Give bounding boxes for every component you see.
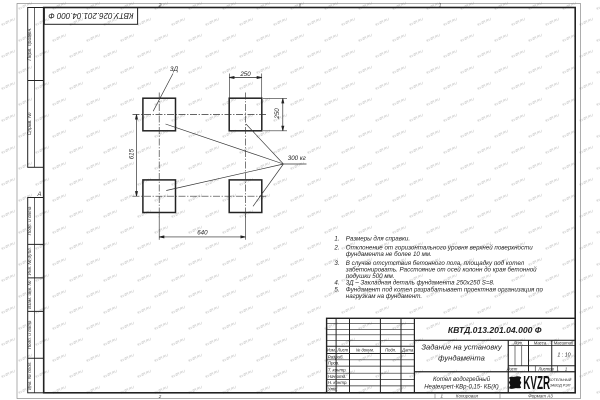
svg-text:640: 640 [197, 230, 208, 237]
svg-text:Взам. инв. №: Взам. инв. № [27, 280, 32, 308]
svg-text:КОТЕЛЬНЫЙ: КОТЕЛЬНЫЙ [549, 378, 572, 382]
svg-text:Котел водогрейный: Котел водогрейный [433, 376, 491, 383]
svg-text:250: 250 [239, 71, 251, 78]
svg-text:Размеры для справки.: Размеры для справки. [346, 236, 410, 243]
svg-text:Подп. и дата: Подп. и дата [27, 320, 32, 349]
svg-text:1 : 10: 1 : 10 [557, 353, 570, 359]
svg-text:фундамента не более 10 мм.: фундамента не более 10 мм. [346, 251, 432, 258]
svg-text:Масса: Масса [534, 341, 547, 346]
svg-text:Разраб.: Разраб. [328, 354, 344, 359]
svg-text:Листов: Листов [537, 366, 554, 371]
svg-text:Лист: Лист [506, 366, 518, 371]
svg-text:Heatexpert-КВр-0,15- КБ(К): Heatexpert-КВр-0,15- КБ(К) [424, 384, 499, 390]
svg-text:Перв. примен.: Перв. примен. [27, 27, 33, 60]
svg-text:615: 615 [128, 148, 135, 159]
svg-text:Нач.отд.: Нач.отд. [328, 374, 347, 379]
svg-text:1.: 1. [334, 236, 339, 243]
svg-text:№ докум.: № докум. [356, 347, 374, 352]
svg-text:Пров.: Пров. [328, 361, 340, 366]
svg-text:250: 250 [274, 108, 281, 120]
svg-text:Формат А3: Формат А3 [528, 394, 553, 399]
svg-text:KVZR: KVZR [523, 373, 550, 393]
svg-text:Подп.: Подп. [385, 347, 396, 352]
svg-text:Копировал: Копировал [456, 394, 479, 399]
svg-text:Дата: Дата [401, 347, 414, 352]
svg-text:3Д: 3Д [170, 66, 179, 73]
svg-text:ЗАВОД РЭП: ЗАВОД РЭП [550, 384, 571, 388]
svg-text:300 кг: 300 кг [288, 155, 306, 162]
svg-text:1: 1 [565, 366, 567, 371]
svg-text:Лит.: Лит. [512, 341, 523, 346]
svg-text:Подп. и дата: Подп. и дата [27, 206, 32, 235]
svg-text:Лист: Лист [336, 347, 348, 352]
svg-text:2.: 2. [333, 244, 339, 251]
svg-text:Инв. № дубл.: Инв. № дубл. [27, 247, 32, 275]
svg-text:Н. контр.: Н. контр. [328, 380, 348, 385]
svg-text:нагрузкам на фундамент.: нагрузкам на фундамент. [346, 293, 422, 300]
svg-text:Задание на установку: Задание на установку [421, 343, 503, 352]
svg-text:Изм.: Изм. [327, 347, 336, 352]
svg-text:Масштаб: Масштаб [554, 341, 574, 346]
svg-text:Т. контр.: Т. контр. [328, 367, 347, 372]
svg-text:Справ. №: Справ. № [27, 112, 33, 135]
svg-text:КВТД.013.201.04.000 Ф: КВТД.013.201.04.000 Ф [448, 325, 542, 335]
svg-text:2: 2 [158, 394, 162, 399]
svg-text:3.: 3. [334, 260, 339, 267]
svg-text:Утв.: Утв. [328, 386, 338, 391]
svg-text:фундамента: фундамента [438, 353, 485, 362]
svg-text:5.: 5. [334, 287, 339, 294]
svg-text:КВТУ.026.201.04.000 Ф: КВТУ.026.201.04.000 Ф [48, 11, 134, 20]
svg-text:Инв. № подл.: Инв. № подл. [27, 361, 32, 390]
